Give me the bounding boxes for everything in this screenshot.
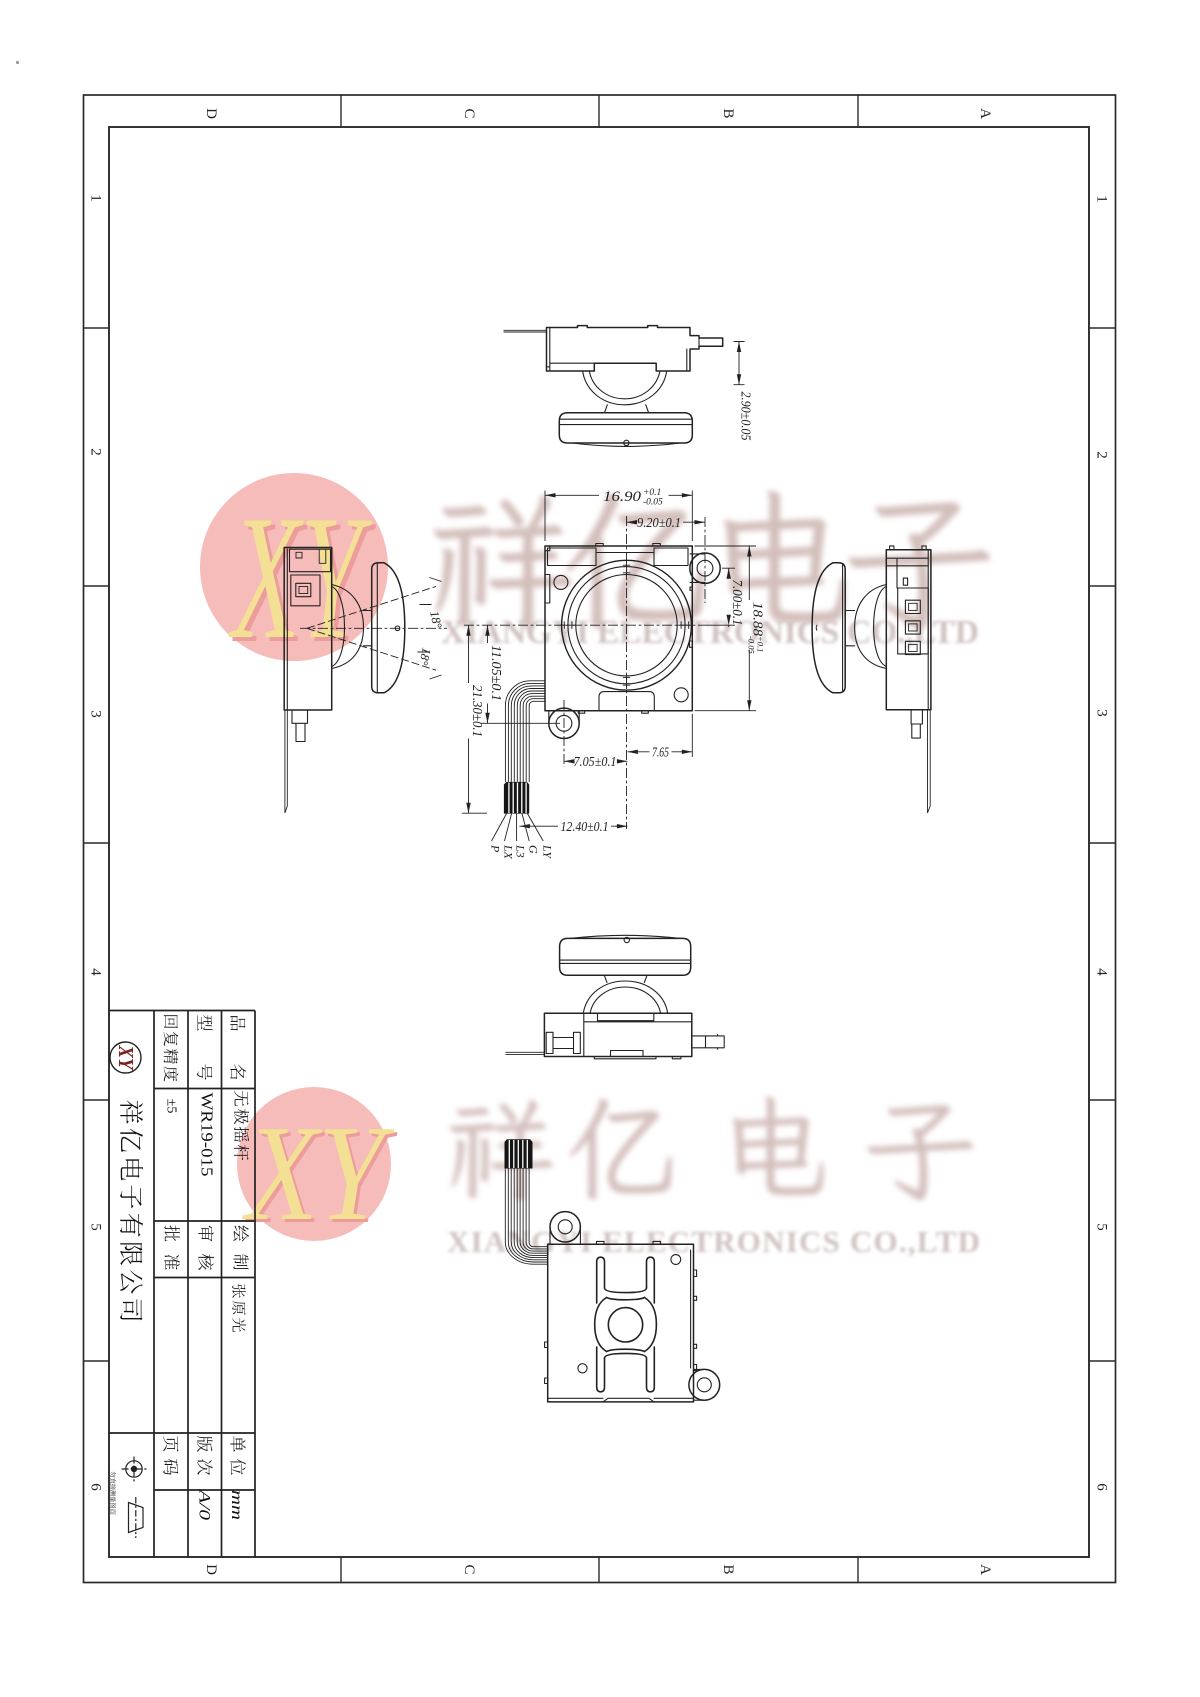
svg-text:6: 6 bbox=[87, 1483, 103, 1491]
svg-text:P: P bbox=[489, 844, 503, 853]
svg-text:18°: 18° bbox=[416, 646, 434, 666]
svg-text:B: B bbox=[720, 1564, 736, 1574]
svg-text:A: A bbox=[977, 1564, 993, 1575]
svg-text:+0.1: +0.1 bbox=[643, 488, 661, 498]
svg-text:-0.05: -0.05 bbox=[643, 498, 663, 508]
svg-text:3: 3 bbox=[87, 710, 103, 718]
svg-text:L3: L3 bbox=[514, 844, 528, 858]
svg-text:WR19-015: WR19-015 bbox=[198, 1093, 217, 1177]
svg-text:2.90±0.05: 2.90±0.05 bbox=[739, 392, 754, 441]
svg-text:12.40±0.1: 12.40±0.1 bbox=[561, 819, 609, 834]
svg-text:4: 4 bbox=[87, 968, 103, 976]
svg-text:1: 1 bbox=[1093, 195, 1109, 203]
svg-text:D: D bbox=[203, 108, 219, 119]
svg-text:C: C bbox=[461, 108, 477, 118]
svg-text:A: A bbox=[977, 108, 993, 119]
svg-text:C: C bbox=[461, 1564, 477, 1574]
svg-text:7.05±0.1: 7.05±0.1 bbox=[574, 754, 617, 769]
svg-text:9.20±0.1: 9.20±0.1 bbox=[637, 516, 681, 531]
svg-text:LX: LX bbox=[502, 844, 516, 860]
svg-text:6: 6 bbox=[1093, 1483, 1109, 1491]
svg-text:2: 2 bbox=[1093, 451, 1109, 459]
svg-text:7.00±0.1: 7.00±0.1 bbox=[730, 580, 745, 626]
svg-text:±5: ±5 bbox=[163, 1099, 178, 1114]
svg-text:G: G bbox=[526, 845, 540, 854]
svg-text:18°: 18° bbox=[427, 610, 445, 630]
svg-text:mm: mm bbox=[228, 1490, 245, 1520]
svg-text:D: D bbox=[203, 1564, 219, 1575]
svg-text:5: 5 bbox=[1093, 1223, 1109, 1231]
svg-text:1: 1 bbox=[87, 194, 103, 202]
svg-text:-0.05: -0.05 bbox=[747, 636, 757, 654]
svg-text:18.88: 18.88 bbox=[751, 602, 766, 636]
svg-text:XY: XY bbox=[242, 1097, 395, 1249]
svg-text:3: 3 bbox=[1093, 709, 1109, 717]
svg-text:21.30±0.1: 21.30±0.1 bbox=[470, 685, 485, 737]
svg-text:LY: LY bbox=[540, 844, 554, 859]
svg-text:11.05±0.1: 11.05±0.1 bbox=[489, 645, 504, 701]
svg-text:16.90: 16.90 bbox=[603, 489, 642, 505]
svg-text:B: B bbox=[720, 108, 736, 118]
svg-text:XIANGYI ELECTRONICS CO.,LTD: XIANGYI ELECTRONICS CO.,LTD bbox=[447, 1224, 980, 1259]
svg-text:A/0: A/0 bbox=[195, 1489, 212, 1521]
svg-text:7.65: 7.65 bbox=[652, 744, 669, 759]
svg-text:XIANGYI ELECTRONICS CO.,LTD: XIANGYI ELECTRONICS CO.,LTD bbox=[441, 614, 979, 651]
svg-text:5: 5 bbox=[87, 1223, 103, 1231]
svg-text:2: 2 bbox=[87, 448, 103, 456]
svg-text:XY: XY bbox=[228, 478, 372, 676]
svg-text:XY: XY bbox=[114, 1045, 138, 1072]
svg-text:4: 4 bbox=[1093, 968, 1109, 976]
